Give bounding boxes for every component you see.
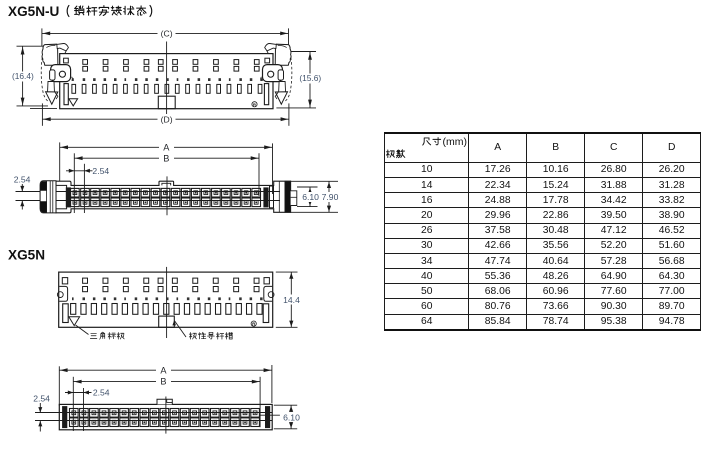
svg-text:(16.4): (16.4): [12, 71, 34, 81]
svg-text:2.54: 2.54: [92, 166, 109, 176]
svg-text:2.54: 2.54: [33, 393, 50, 403]
svg-text:2.54: 2.54: [93, 388, 110, 398]
svg-text:XG5N-U: XG5N-U: [8, 4, 59, 19]
svg-text:6.10: 6.10: [283, 412, 300, 422]
svg-text:(D): (D): [161, 114, 173, 124]
svg-text:7.90: 7.90: [322, 192, 339, 202]
svg-text:(C): (C): [161, 28, 173, 38]
svg-text:A: A: [163, 142, 170, 152]
svg-text:(15.6): (15.6): [299, 73, 321, 83]
svg-text:(mm): (mm): [443, 136, 468, 148]
svg-text:6.10: 6.10: [302, 192, 319, 202]
svg-text:14.4: 14.4: [283, 295, 300, 305]
svg-text:A: A: [160, 365, 167, 375]
svg-text:B: B: [163, 153, 169, 163]
svg-text:XG5N: XG5N: [8, 248, 45, 263]
svg-text:B: B: [160, 377, 166, 387]
svg-text:2.54: 2.54: [14, 174, 31, 184]
